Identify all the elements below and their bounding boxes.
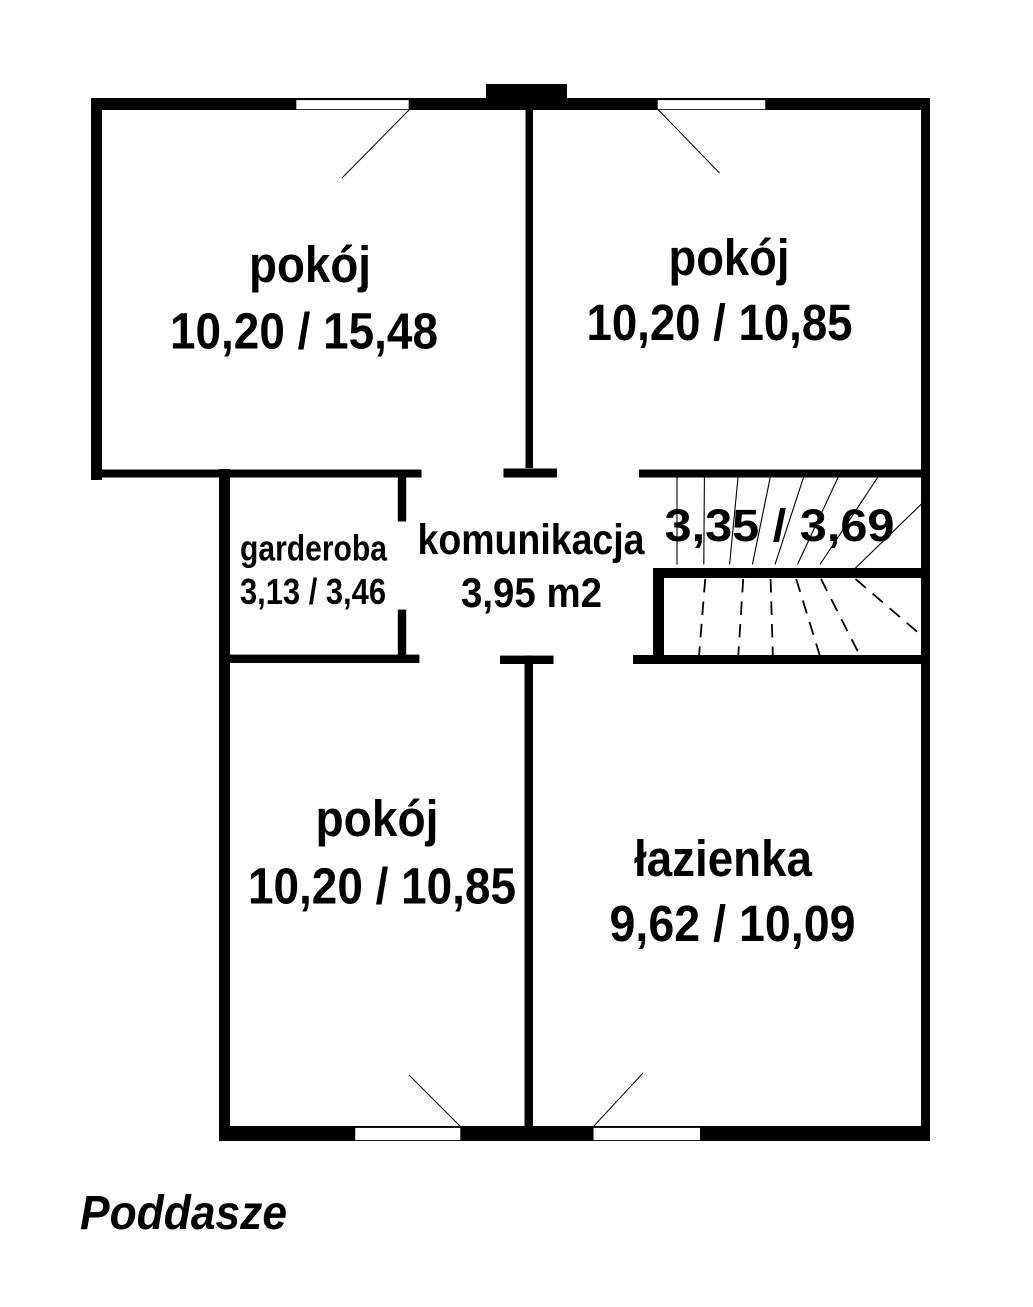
svg-text:pokój: pokój [669,229,790,286]
svg-text:10,20 / 15,48: 10,20 / 15,48 [170,303,438,360]
svg-text:pokój: pokój [249,236,371,293]
svg-text:3,35 / 3,69: 3,35 / 3,69 [665,500,895,551]
svg-text:Poddasze: Poddasze [80,1187,287,1240]
svg-text:10,20 / 10,85: 10,20 / 10,85 [587,294,853,351]
svg-text:3,13 / 3,46: 3,13 / 3,46 [240,571,386,612]
svg-text:10,20 / 10,85: 10,20 / 10,85 [248,857,516,914]
svg-text:pokój: pokój [316,790,439,847]
svg-text:3,95 m2: 3,95 m2 [461,569,602,616]
svg-text:9,62 / 10,09: 9,62 / 10,09 [610,895,856,952]
svg-text:komunikacja: komunikacja [418,516,646,564]
svg-text:łazienka: łazienka [634,830,813,887]
svg-text:garderoba: garderoba [240,527,388,568]
